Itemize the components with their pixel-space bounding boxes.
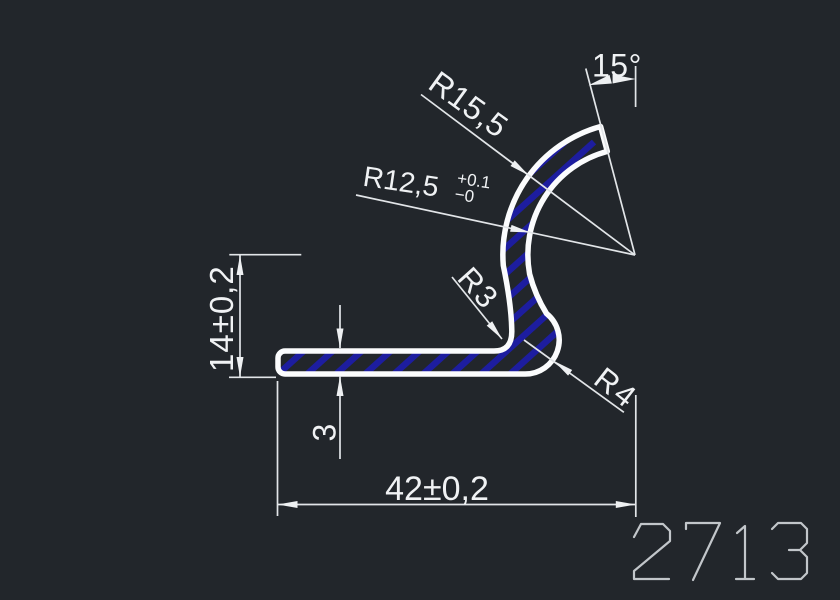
svg-text:15°: 15° (592, 48, 642, 84)
svg-text:−0: −0 (453, 185, 475, 207)
svg-text:14±0,2: 14±0,2 (203, 265, 240, 372)
svg-text:42±0,2: 42±0,2 (385, 470, 489, 508)
svg-text:3: 3 (307, 424, 343, 442)
